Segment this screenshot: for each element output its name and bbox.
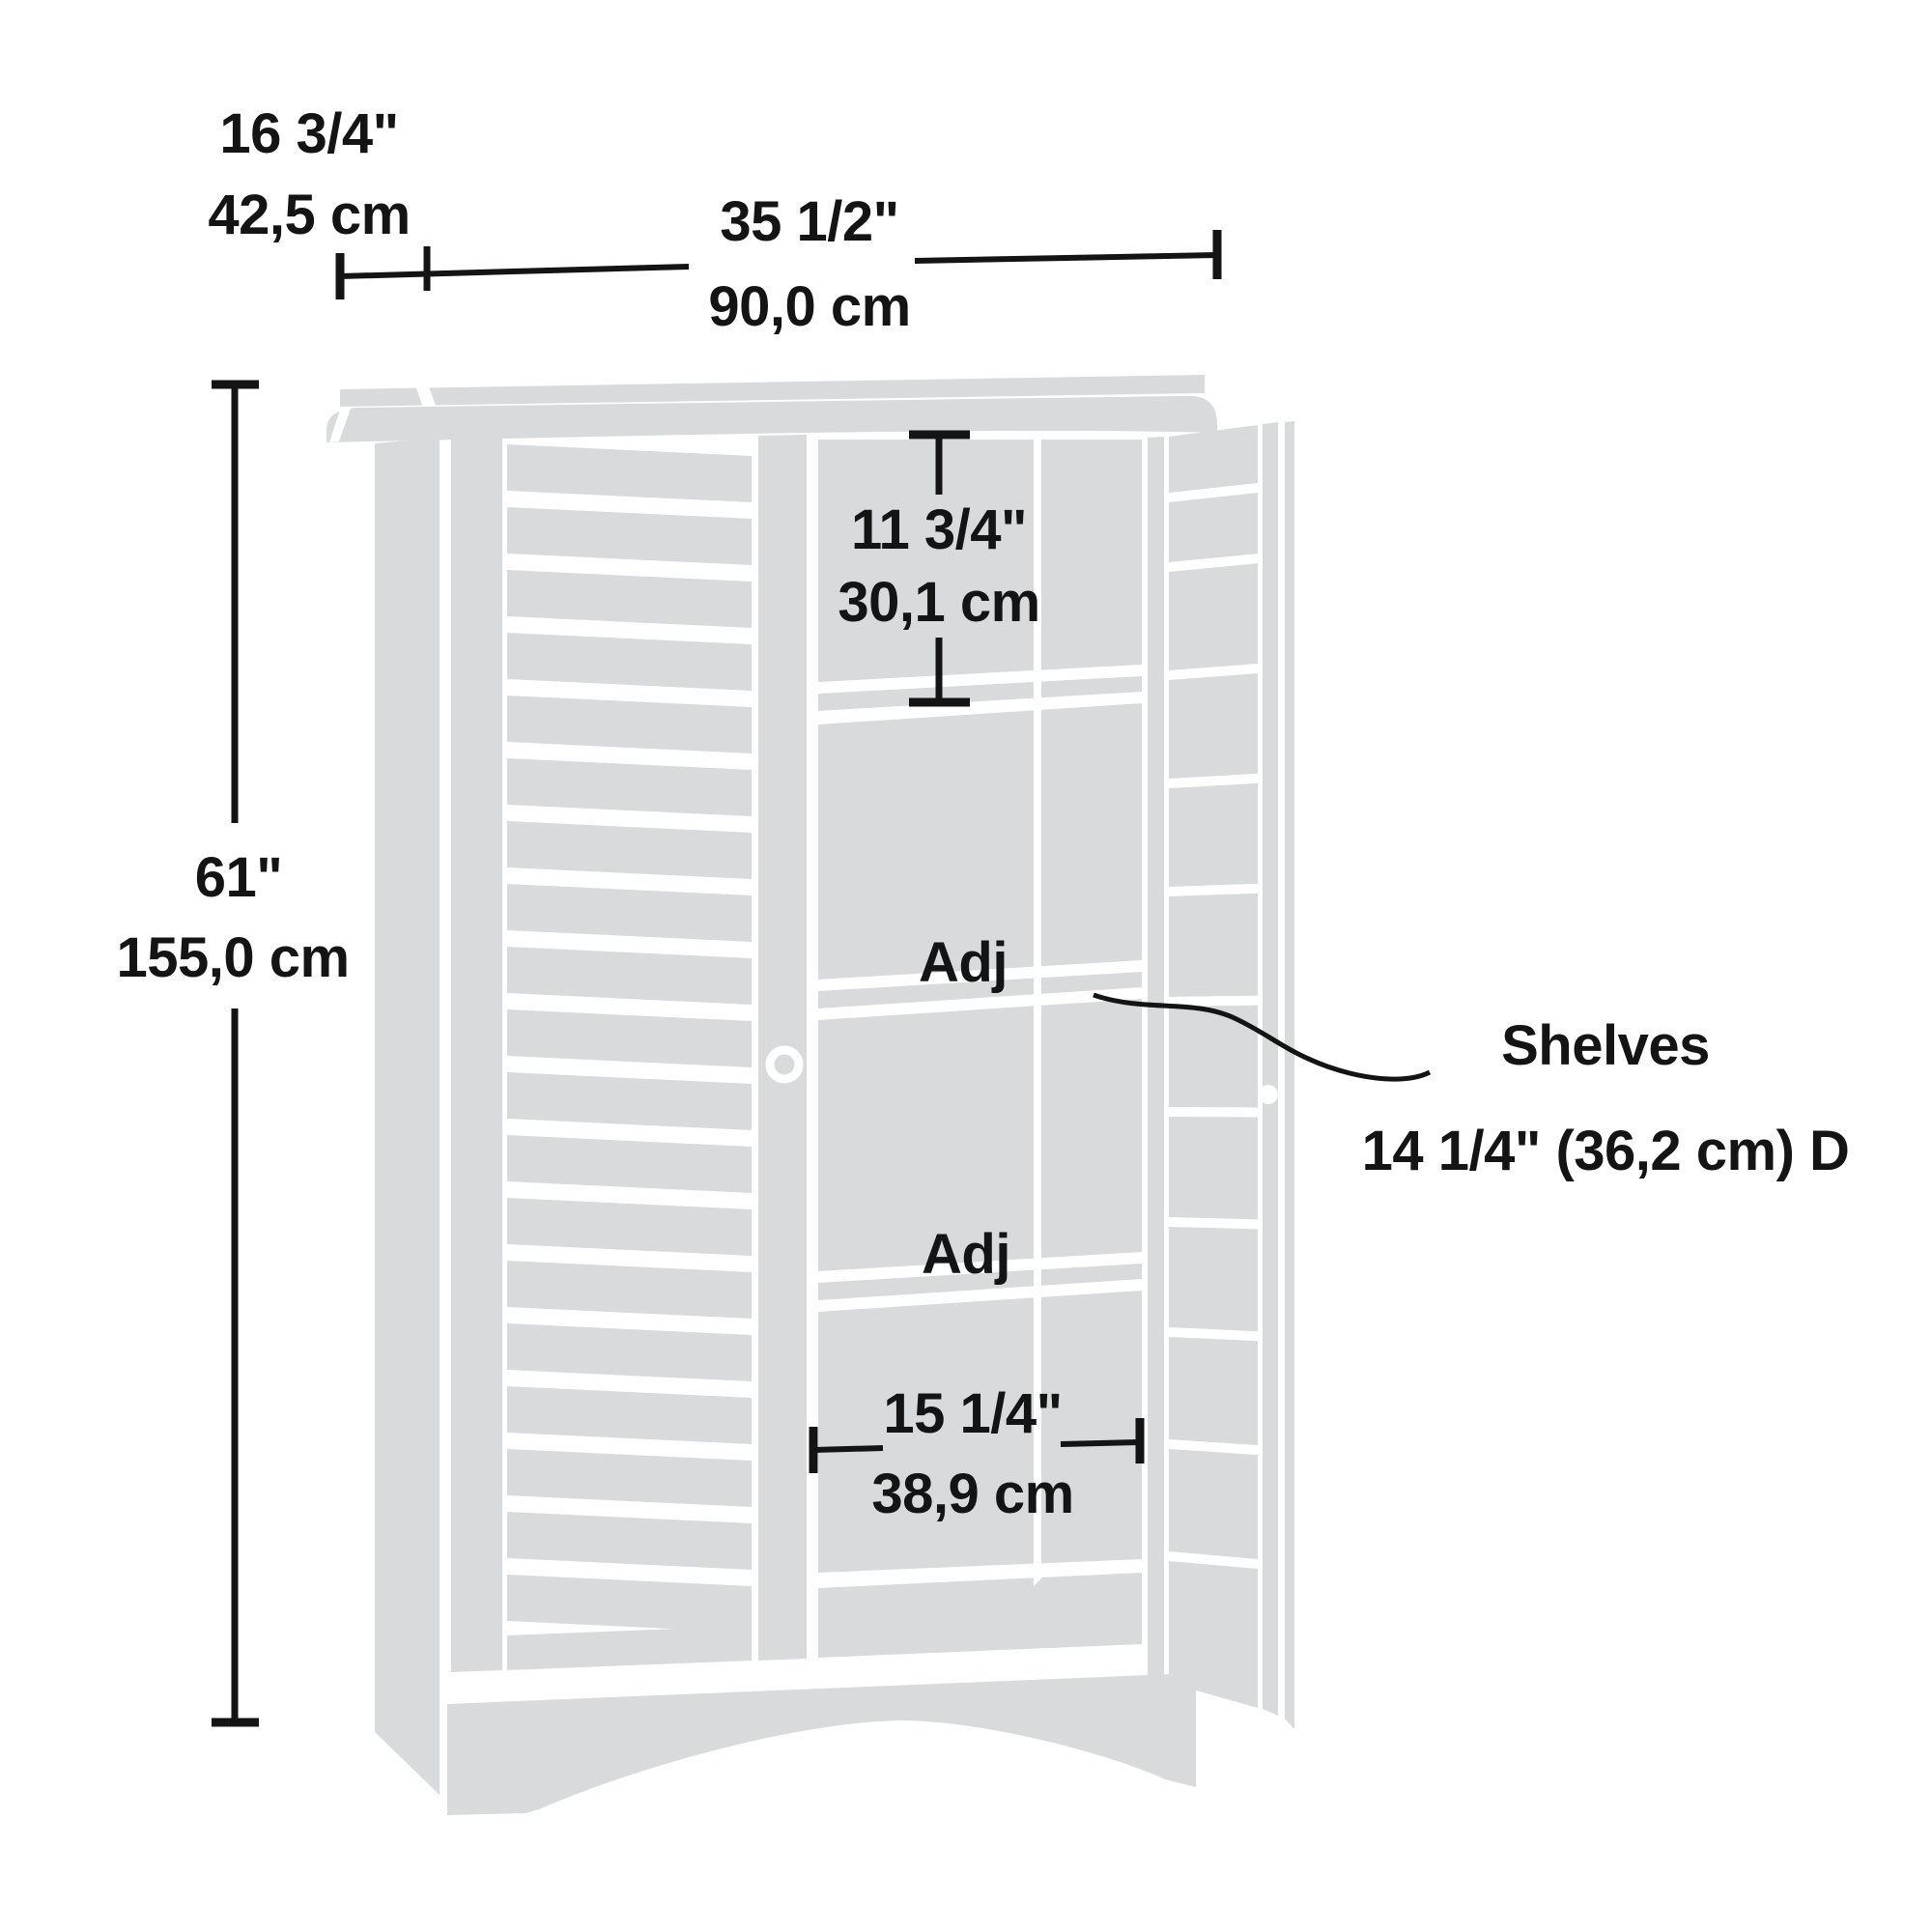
louver-slat: [507, 947, 752, 1005]
adjustable-shelf-1-label: Adj: [919, 931, 1008, 994]
height-metric-label: 155,0 cm: [116, 926, 349, 989]
top-opening-metric-label: 30,1 cm: [838, 571, 1039, 634]
open-door-louver-panel: [1169, 425, 1258, 1708]
louver-slat: [507, 1386, 752, 1444]
open-door-outer-stile: [1263, 422, 1278, 1716]
louver-door-bottom-rail: [507, 1626, 752, 1670]
open-door-hinge-stile: [1148, 437, 1164, 1685]
crown-molding: [327, 375, 1217, 442]
width-metric-label: 90,0 cm: [708, 275, 910, 338]
height-imperial-label: 61": [195, 846, 283, 909]
louver-door: [451, 435, 807, 1672]
louver-slat: [507, 1198, 752, 1256]
louver-slat: [507, 1135, 752, 1193]
louver-slat: [507, 1575, 752, 1633]
shelves-note-title: Shelves: [1501, 1014, 1710, 1077]
open-door-slat-divider: [1169, 1107, 1258, 1117]
louver-slat: [507, 633, 752, 691]
louver-slat: [507, 696, 752, 753]
shelves-leader-line: [1094, 995, 1430, 1079]
adjustable-shelf-2-label: Adj: [922, 1223, 1010, 1286]
height-dimension-line: [212, 384, 259, 1722]
bottom-opening-imperial-label: 15 1/4": [883, 1382, 1062, 1445]
width-imperial-label: 35 1/2": [720, 190, 898, 253]
louver-slat: [507, 1261, 752, 1319]
louver-door-left-stile: [451, 436, 502, 1672]
louver-slat: [507, 1072, 752, 1130]
bottom-opening-metric-label: 38,9 cm: [871, 1463, 1073, 1525]
shelves-note-detail: 14 1/4" (36,2 cm) D: [1362, 1120, 1850, 1182]
cabinet-drawing: [327, 375, 1294, 1815]
depth-metric-label: 42,5 cm: [208, 184, 410, 246]
left-side-panel: [375, 438, 440, 1795]
depth-imperial-label: 16 3/4": [219, 102, 398, 165]
louver-slat: [507, 758, 752, 816]
open-door-edge: [1285, 421, 1294, 1729]
louver-slat: [507, 1009, 752, 1067]
louver-slat: [507, 1512, 752, 1570]
cabinet-dimension-drawing: 16 3/4" 42,5 cm 35 1/2" 90,0 cm 61" 155,…: [0, 0, 1932, 1932]
base-panel: [447, 1673, 1196, 1815]
right-door-knob: [1259, 1085, 1278, 1104]
louver-slat: [507, 444, 752, 502]
louver-slat: [507, 1323, 752, 1381]
top-opening-imperial-label: 11 3/4": [851, 498, 1027, 561]
open-right-door: [1148, 421, 1294, 1729]
dimension-diagram: 16 3/4" 42,5 cm 35 1/2" 90,0 cm 61" 155,…: [0, 0, 1932, 1932]
louver-slats: [507, 444, 752, 1633]
louver-slat: [507, 570, 752, 628]
louver-slat: [507, 507, 752, 565]
louver-slat: [507, 1449, 752, 1507]
louver-slat: [507, 884, 752, 942]
louver-slat: [507, 821, 752, 879]
